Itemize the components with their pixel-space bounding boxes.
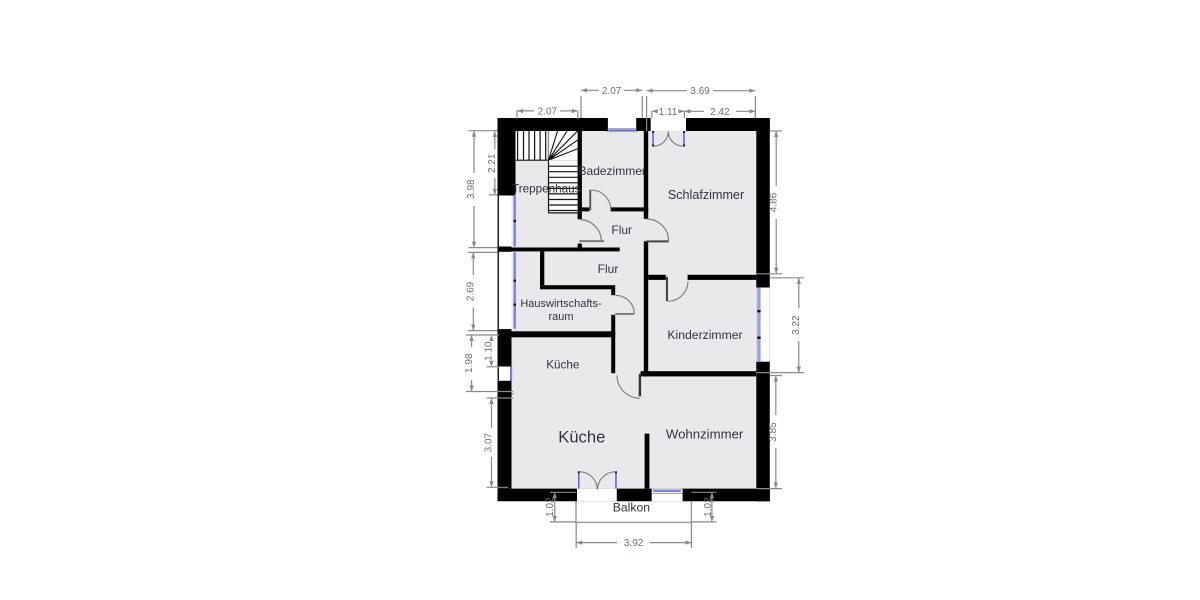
svg-text:Badezimmer: Badezimmer [579,164,646,178]
svg-text:1.10: 1.10 [484,341,495,361]
svg-text:Balkon: Balkon [613,500,650,514]
svg-text:1.02: 1.02 [545,497,556,517]
svg-text:1.98: 1.98 [464,353,475,373]
svg-text:2.69: 2.69 [466,281,477,301]
svg-text:4.86: 4.86 [768,192,779,212]
svg-text:3.07: 3.07 [484,432,495,452]
svg-text:1.11: 1.11 [659,107,678,118]
svg-text:raum: raum [548,311,573,323]
svg-text:Hauswirtschafts-: Hauswirtschafts- [520,298,602,310]
svg-text:3.85: 3.85 [768,422,779,442]
svg-text:Küche: Küche [558,427,605,446]
svg-text:2.07: 2.07 [538,106,558,117]
svg-text:Flur: Flur [611,223,632,237]
svg-text:Treppenhaus: Treppenhaus [512,183,581,196]
svg-text:2.07: 2.07 [602,86,622,97]
svg-text:3.98: 3.98 [466,179,477,199]
svg-text:Flur: Flur [598,262,619,276]
svg-text:2.42: 2.42 [710,107,730,118]
svg-text:3.69: 3.69 [690,86,710,97]
svg-text:2.21: 2.21 [487,153,498,173]
svg-text:3.22: 3.22 [791,315,802,335]
svg-text:Schlafzimmer: Schlafzimmer [668,188,744,202]
svg-text:1.02: 1.02 [703,497,714,517]
svg-text:Kinderzimmer: Kinderzimmer [667,328,742,342]
svg-text:3.92: 3.92 [624,538,644,549]
svg-text:Küche: Küche [546,358,579,371]
svg-text:Wohnzimmer: Wohnzimmer [666,427,744,442]
